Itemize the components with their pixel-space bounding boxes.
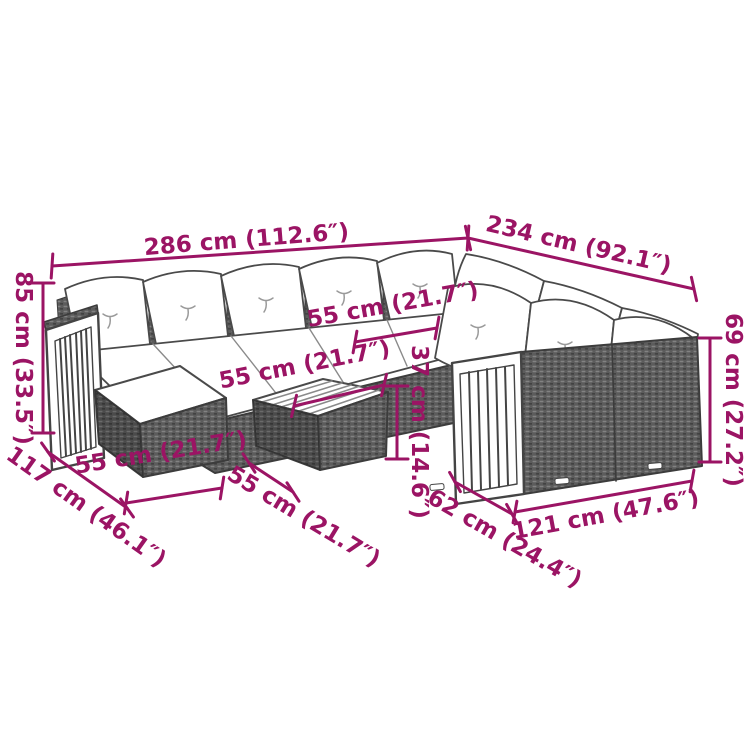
- wood-panel-right: [452, 352, 524, 504]
- rattan-front-right: [521, 337, 702, 494]
- dim-ottoman-width-line: [124, 477, 223, 514]
- foot: [648, 462, 662, 469]
- dim-label-arm-height: 69 cm (27.2″): [720, 313, 746, 487]
- dim-label-total-width: 286 cm (112.6″): [143, 219, 350, 261]
- wood-panel-left-arm: [44, 305, 104, 470]
- dim-label-right-seat-depth: 62 cm (24.4″): [423, 484, 586, 593]
- dim-label-right-front-width: 121 cm (47.6″): [510, 485, 701, 545]
- dim-label-back-height: 85 cm (33.5″): [10, 271, 36, 445]
- product-dimension-image: 286 cm (112.6″) 234 cm (92.1″) 85 cm (33…: [0, 0, 750, 750]
- foot: [555, 477, 569, 484]
- garden-sofa-set-diagram: 286 cm (112.6″) 234 cm (92.1″) 85 cm (33…: [0, 0, 750, 750]
- dim-label-table-depth: 55 cm (21.7″): [222, 461, 384, 573]
- dim-arm-height-line: [699, 338, 721, 462]
- dim-label-table-height: 37 cm (14.6″): [406, 345, 432, 519]
